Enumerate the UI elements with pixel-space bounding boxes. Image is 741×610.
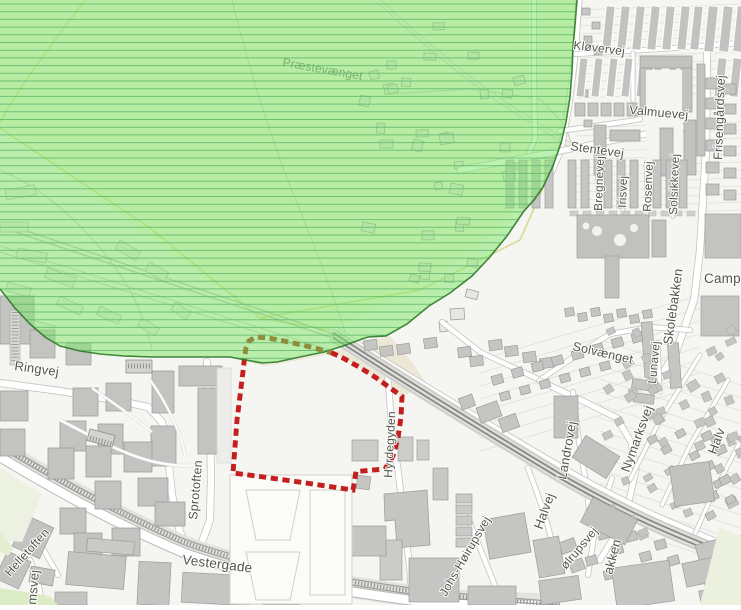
svg-text:Solsikkevej: Solsikkevej xyxy=(666,153,682,215)
svg-text:Frisengårdsvej: Frisengårdsvej xyxy=(711,75,728,160)
svg-text:Irisvej: Irisvej xyxy=(615,175,630,208)
svg-text:Bregnevej: Bregnevej xyxy=(591,156,607,211)
svg-text:Rosenvej: Rosenvej xyxy=(640,161,656,212)
svg-text:Campu: Campu xyxy=(704,271,741,286)
svg-text:msvej: msvej xyxy=(24,569,42,605)
